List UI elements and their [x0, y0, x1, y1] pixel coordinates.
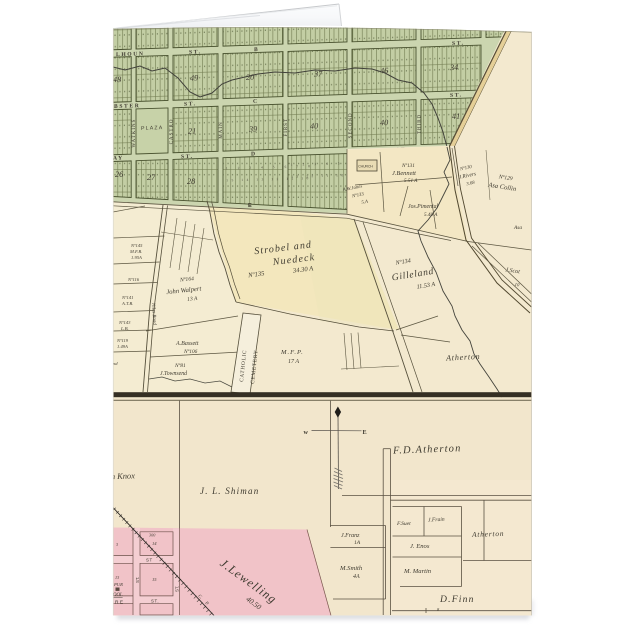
svg-text:Atherton: Atherton [445, 352, 481, 363]
svg-text:J.Franz: J.Franz [341, 533, 360, 539]
svg-text:28: 28 [187, 177, 195, 186]
svg-text:A.Bassett: A.Bassett [175, 341, 199, 347]
svg-text:Nº145: Nº145 [130, 243, 143, 248]
svg-text:ST.: ST. [452, 41, 465, 47]
svg-text:1A: 1A [354, 540, 361, 546]
svg-text:J.Townsend: J.Townsend [160, 371, 187, 377]
svg-text:49: 49 [190, 73, 198, 82]
svg-text:CASTRO: CASTRO [170, 118, 175, 144]
svg-text:A.T.B.: A.T.B. [121, 301, 133, 306]
svg-text:26: 26 [115, 170, 124, 179]
svg-text:BSTER: BSTER [114, 103, 140, 110]
svg-text:w: w [304, 429, 309, 436]
svg-text:J. Enos: J. Enos [410, 543, 430, 550]
svg-text:FIRST: FIRST [284, 118, 289, 137]
svg-text:ST.: ST. [175, 586, 180, 592]
svg-text:ST.: ST. [135, 577, 140, 583]
svg-text:J. L. Shiman: J. L. Shiman [200, 486, 259, 496]
svg-text:ST: ST [146, 557, 153, 562]
svg-text:CHURCH: CHURCH [358, 165, 373, 169]
svg-text:WATKINS: WATKINS [132, 119, 137, 148]
svg-text:39: 39 [248, 124, 257, 133]
svg-text:5.40 A: 5.40 A [424, 211, 438, 218]
svg-text:Nº119: Nº119 [116, 338, 129, 343]
svg-text:MAIN: MAIN [219, 121, 224, 139]
svg-text:D.Finn: D.Finn [439, 594, 475, 605]
svg-text:M.Smith: M.Smith [339, 565, 363, 572]
svg-text:Nº116: Nº116 [127, 277, 140, 282]
svg-text:14: 14 [152, 541, 157, 546]
svg-text:nd: nd [113, 361, 118, 366]
svg-text:ST.: ST. [184, 101, 197, 107]
svg-text:Nº106: Nº106 [183, 349, 198, 355]
svg-text:PLAZA: PLAZA [141, 125, 163, 132]
svg-text:13 A: 13 A [187, 296, 198, 303]
svg-text:E: E [248, 203, 253, 209]
svg-text:Nº141: Nº141 [121, 295, 133, 300]
svg-text:300: 300 [149, 533, 156, 538]
svg-text:ST.: ST. [151, 599, 159, 604]
svg-text:LHOUN: LHOUN [116, 51, 145, 58]
svg-text:Nº81: Nº81 [174, 363, 186, 369]
svg-text:Jos.Pimental: Jos.Pimental [408, 204, 438, 210]
svg-text:M.F.B.: M.F.B. [129, 249, 142, 254]
svg-text:1.95A: 1.95A [131, 255, 142, 260]
svg-text:27: 27 [147, 173, 156, 182]
svg-text:OOL: OOL [113, 593, 123, 598]
svg-text:M. Martin: M. Martin [403, 568, 432, 575]
svg-text:20: 20 [246, 73, 254, 82]
svg-text:13: 13 [115, 575, 119, 580]
svg-text:34: 34 [449, 63, 458, 72]
svg-text:SECOND: SECOND [349, 112, 354, 138]
svg-text:Asa: Asa [513, 225, 522, 231]
svg-text:L.B.: L.B. [120, 326, 129, 331]
svg-text:ST.: ST. [450, 92, 463, 98]
svg-text:ST.: ST. [189, 49, 202, 55]
svg-text:1.49A: 1.49A [117, 344, 128, 349]
svg-text:41: 41 [452, 112, 460, 121]
svg-text:3: 3 [116, 542, 118, 547]
svg-text:21: 21 [188, 126, 196, 135]
svg-text:J.Bennett: J.Bennett [392, 170, 416, 177]
svg-text:Atherton: Atherton [471, 529, 505, 539]
svg-text:E: E [363, 429, 367, 436]
svg-text:B: B [254, 47, 259, 53]
svg-text:RE: RE [115, 600, 124, 606]
svg-text:4A: 4A [353, 573, 360, 580]
svg-text:17 A: 17 A [288, 359, 299, 365]
svg-text:J.Frain: J.Frain [428, 517, 445, 524]
svg-text:C: C [253, 99, 259, 105]
svg-text:PUR: PUR [113, 582, 123, 587]
svg-text:48: 48 [113, 75, 121, 84]
svg-text:5.51 A: 5.51 A [404, 178, 418, 184]
svg-text:THIRD: THIRD [418, 114, 423, 134]
svg-text:40: 40 [310, 121, 318, 130]
svg-text:F.Suet: F.Suet [396, 521, 411, 527]
svg-text:40: 40 [380, 118, 388, 127]
svg-text:15: 15 [152, 577, 157, 582]
svg-text:Nº131: Nº131 [401, 163, 415, 169]
svg-text:Nº143: Nº143 [118, 320, 131, 325]
svg-text:M.F.P.: M.F.P. [280, 349, 304, 356]
